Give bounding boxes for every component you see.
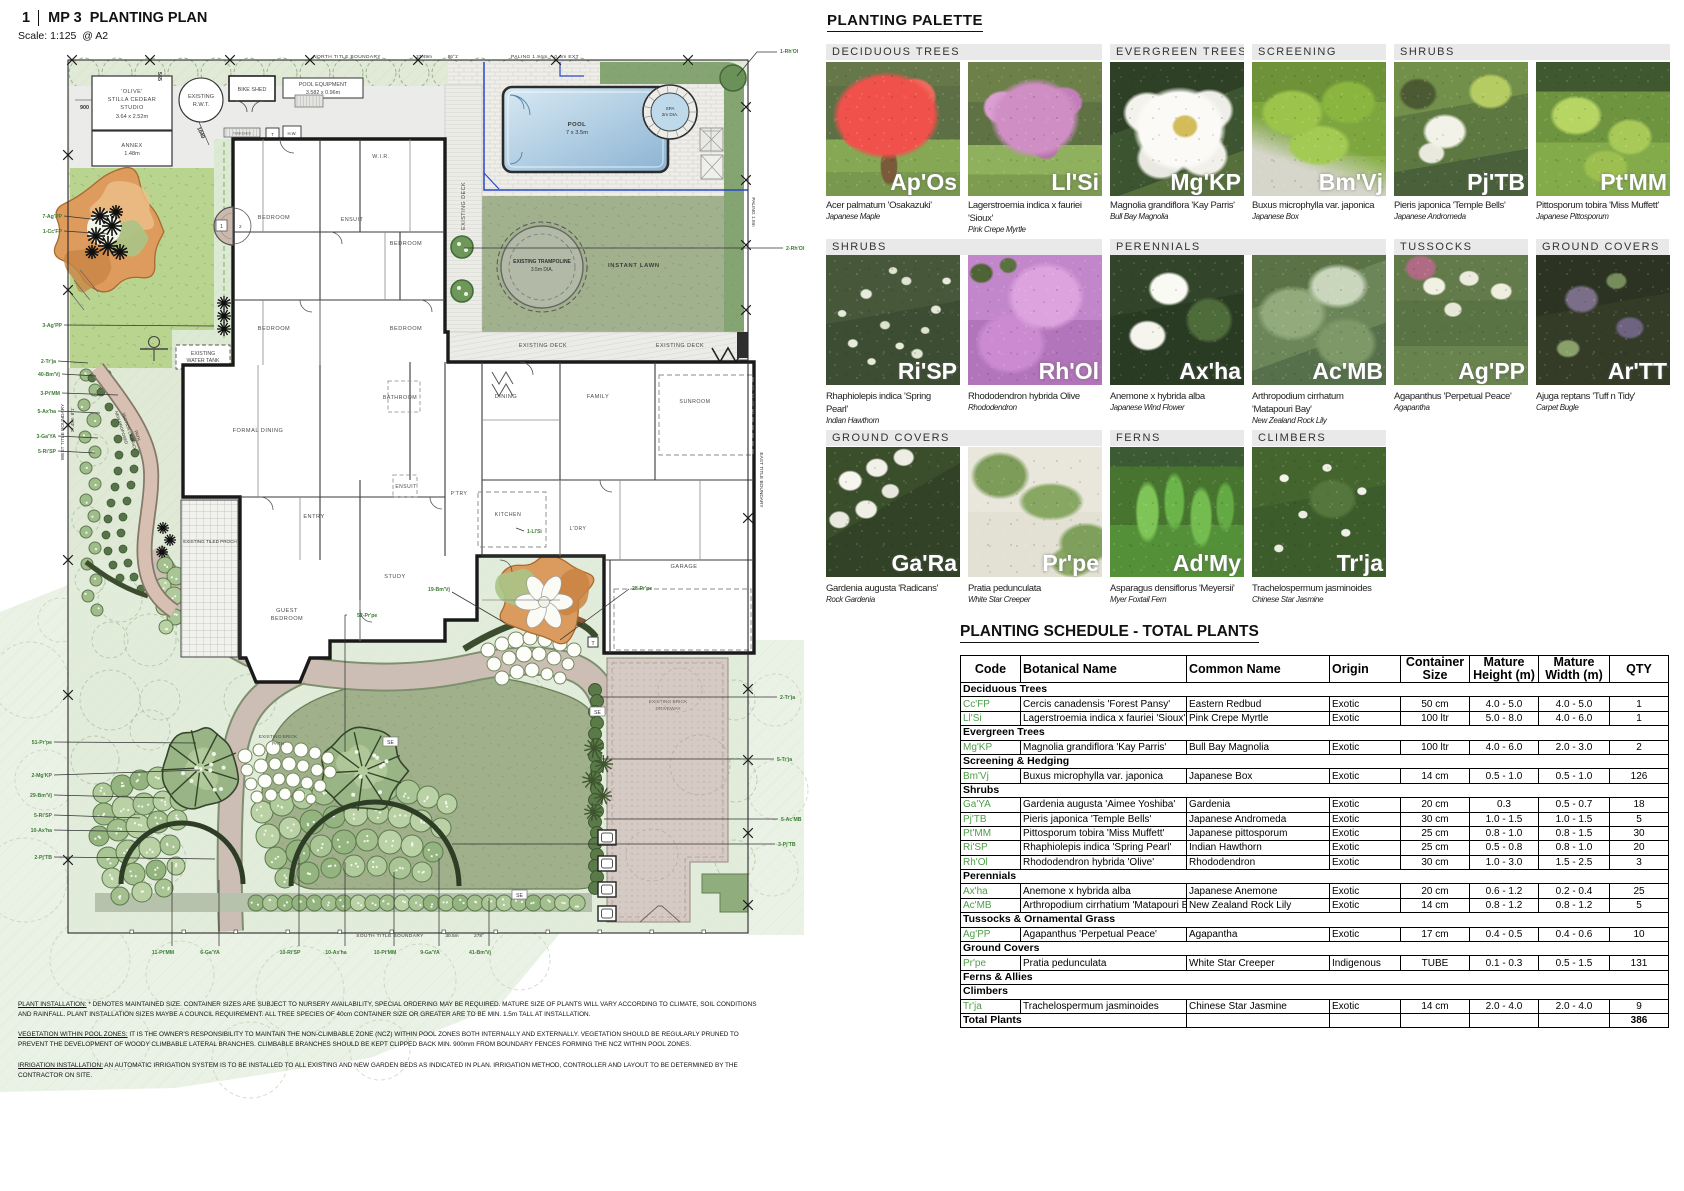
svg-text:EXISTING TRAMPOLINE: EXISTING TRAMPOLINE (513, 259, 571, 265)
svg-text:GUEST: GUEST (276, 608, 298, 614)
svg-text:FORMAL DINING: FORMAL DINING (233, 428, 284, 434)
svg-text:STILLA CEDEAR: STILLA CEDEAR (108, 97, 156, 103)
svg-text:'OLIVE': 'OLIVE' (121, 89, 142, 95)
svg-text:POOL: POOL (568, 122, 586, 128)
svg-text:SE: SE (594, 710, 601, 716)
svg-text:86°1': 86°1' (448, 54, 459, 60)
svg-text:EXISTING TILED PROCH: EXISTING TILED PROCH (183, 539, 237, 544)
svg-text:40-Bm'Vj: 40-Bm'Vj (38, 372, 61, 378)
svg-text:1: 1 (220, 224, 223, 230)
svg-text:EXISTING DECK: EXISTING DECK (519, 343, 567, 349)
svg-text:30.5m: 30.5m (445, 933, 458, 939)
svg-text:L'DRY: L'DRY (570, 526, 587, 532)
svg-text:2-Tr'ja: 2-Tr'ja (780, 695, 795, 701)
svg-text:10-Ri'SP: 10-Ri'SP (280, 950, 301, 956)
svg-text:3-Pt'MM: 3-Pt'MM (40, 391, 60, 397)
svg-text:BATHROOM: BATHROOM (383, 395, 417, 401)
svg-text:28-Pr'pe: 28-Pr'pe (632, 586, 652, 592)
svg-text:PALING 1.94m + 0.6m EXT: PALING 1.94m + 0.6m EXT (511, 54, 579, 60)
svg-text:EAST TITLE BOUNDARY: EAST TITLE BOUNDARY (758, 452, 764, 508)
svg-text:ENTRY: ENTRY (303, 514, 324, 520)
svg-text:ENSUIT: ENSUIT (395, 484, 416, 490)
svg-text:POOL EQUIPMENT: POOL EQUIPMENT (299, 82, 348, 88)
svg-text:DRIVEWAY: DRIVEWAY (655, 706, 681, 712)
svg-text:BEDROOM: BEDROOM (271, 616, 303, 622)
svg-text:6-Ga'YA: 6-Ga'YA (200, 950, 220, 956)
svg-text:278°: 278° (474, 933, 484, 939)
svg-text:5-Ri'SP: 5-Ri'SP (38, 449, 56, 455)
svg-text:DINING: DINING (495, 394, 518, 400)
svg-text:R.W.T.: R.W.T. (193, 102, 210, 108)
svg-text:1-Ll'Si: 1-Ll'Si (527, 529, 542, 535)
svg-text:ENSUIT: ENSUIT (341, 217, 364, 223)
svg-text:5-Ri'SP: 5-Ri'SP (34, 813, 52, 819)
svg-text:FAMILY: FAMILY (587, 394, 609, 400)
svg-text:H.W.: H.W. (287, 131, 296, 136)
svg-text:1-Cc'FP: 1-Cc'FP (43, 229, 63, 235)
svg-text:11-Pt'MM: 11-Pt'MM (152, 950, 174, 956)
svg-text:WATER TANK: WATER TANK (187, 358, 220, 364)
svg-text:P'TRY: P'TRY (451, 491, 468, 497)
svg-text:INSTANT LAWN: INSTANT LAWN (608, 263, 660, 269)
svg-text:EXISTING BRICK: EXISTING BRICK (649, 699, 688, 705)
svg-text:BEDROOM: BEDROOM (258, 326, 290, 332)
svg-text:10-Pt'MM: 10-Pt'MM (374, 950, 397, 956)
svg-text:PALING 1.8m: PALING 1.8m (750, 197, 756, 226)
svg-text:19-Bm'Vj: 19-Bm'Vj (428, 587, 451, 593)
svg-text:SPA: SPA (666, 106, 676, 111)
svg-text:BEDROOM: BEDROOM (390, 241, 422, 247)
svg-text:2-Mg'KP: 2-Mg'KP (31, 773, 52, 779)
svg-text:10-Ax'ha: 10-Ax'ha (31, 828, 53, 834)
svg-text:PATH: PATH (272, 741, 285, 747)
svg-text:T: T (271, 132, 274, 137)
svg-text:EXISTING: EXISTING (191, 351, 215, 357)
svg-text:37.49m: 37.49m (416, 54, 432, 60)
svg-text:2m DIA.: 2m DIA. (662, 112, 679, 117)
svg-text:STUDY: STUDY (384, 574, 405, 580)
svg-text:565: 565 (156, 72, 162, 81)
svg-text:BEDROOM: BEDROOM (258, 215, 290, 221)
svg-text:EXISTING DECK: EXISTING DECK (461, 182, 467, 230)
svg-text:7-Ag'PP: 7-Ag'PP (42, 214, 62, 220)
svg-text:41-Bm'Vj: 41-Bm'Vj (469, 950, 492, 956)
svg-text:3.64 x 2.52m: 3.64 x 2.52m (116, 114, 149, 120)
svg-text:5-Ax'ha: 5-Ax'ha (37, 409, 56, 415)
svg-text:7 x 3.5m: 7 x 3.5m (566, 130, 588, 136)
svg-text:ANNEX: ANNEX (121, 143, 142, 149)
svg-text:2-Pj'TB: 2-Pj'TB (34, 855, 52, 861)
svg-text:5-Ac'MB: 5-Ac'MB (781, 817, 802, 823)
svg-text:900: 900 (80, 105, 89, 111)
svg-text:3-Ga'YA: 3-Ga'YA (37, 434, 57, 440)
svg-text:3-Ag'PP: 3-Ag'PP (42, 323, 62, 329)
svg-text:EXISTING: EXISTING (188, 94, 214, 100)
svg-text:NORTH TITLE BOUNDARY: NORTH TITLE BOUNDARY (313, 54, 381, 60)
svg-text:2: 2 (239, 224, 242, 229)
svg-text:TANKSHED: TANKSHED (233, 132, 252, 136)
svg-text:3-Pj'TB: 3-Pj'TB (778, 842, 796, 848)
svg-text:SUNROOM: SUNROOM (679, 399, 710, 405)
svg-text:38.1m 186°7': 38.1m 186°7' (750, 385, 756, 415)
svg-text:BIKE SHED: BIKE SHED (238, 87, 267, 93)
svg-text:10-Ax'ha: 10-Ax'ha (325, 950, 347, 956)
svg-text:3.5m DIA.: 3.5m DIA. (531, 267, 553, 273)
svg-text:2-Tr'ja: 2-Tr'ja (41, 359, 56, 365)
svg-text:KITCHEN: KITCHEN (495, 512, 522, 518)
svg-text:1.48m: 1.48m (124, 151, 140, 157)
svg-text:2-Rh'Ol: 2-Rh'Ol (786, 246, 805, 252)
svg-text:SE: SE (387, 740, 394, 746)
svg-text:GARAGE: GARAGE (671, 564, 698, 570)
svg-text:W.I.R.: W.I.R. (372, 154, 389, 160)
svg-text:29-Bm'Vj: 29-Bm'Vj (30, 793, 53, 799)
svg-text:SOUTH TITLE BOUNDARY: SOUTH TITLE BOUNDARY (356, 933, 424, 939)
svg-text:SE: SE (516, 893, 523, 899)
svg-text:STUDIO: STUDIO (120, 105, 144, 111)
svg-text:EXISTING BRICK: EXISTING BRICK (259, 734, 298, 740)
svg-text:BEDROOM: BEDROOM (390, 326, 422, 332)
svg-text:51-Pr'pe: 51-Pr'pe (32, 740, 52, 746)
svg-text:1-Rh'Ol: 1-Rh'Ol (780, 49, 799, 55)
svg-text:9-Ga'YA: 9-Ga'YA (420, 950, 440, 956)
svg-text:5-Tr'ja: 5-Tr'ja (777, 757, 792, 763)
svg-text:EXISTING DECK: EXISTING DECK (656, 343, 704, 349)
svg-text:52-Pr'pe: 52-Pr'pe (357, 613, 377, 619)
